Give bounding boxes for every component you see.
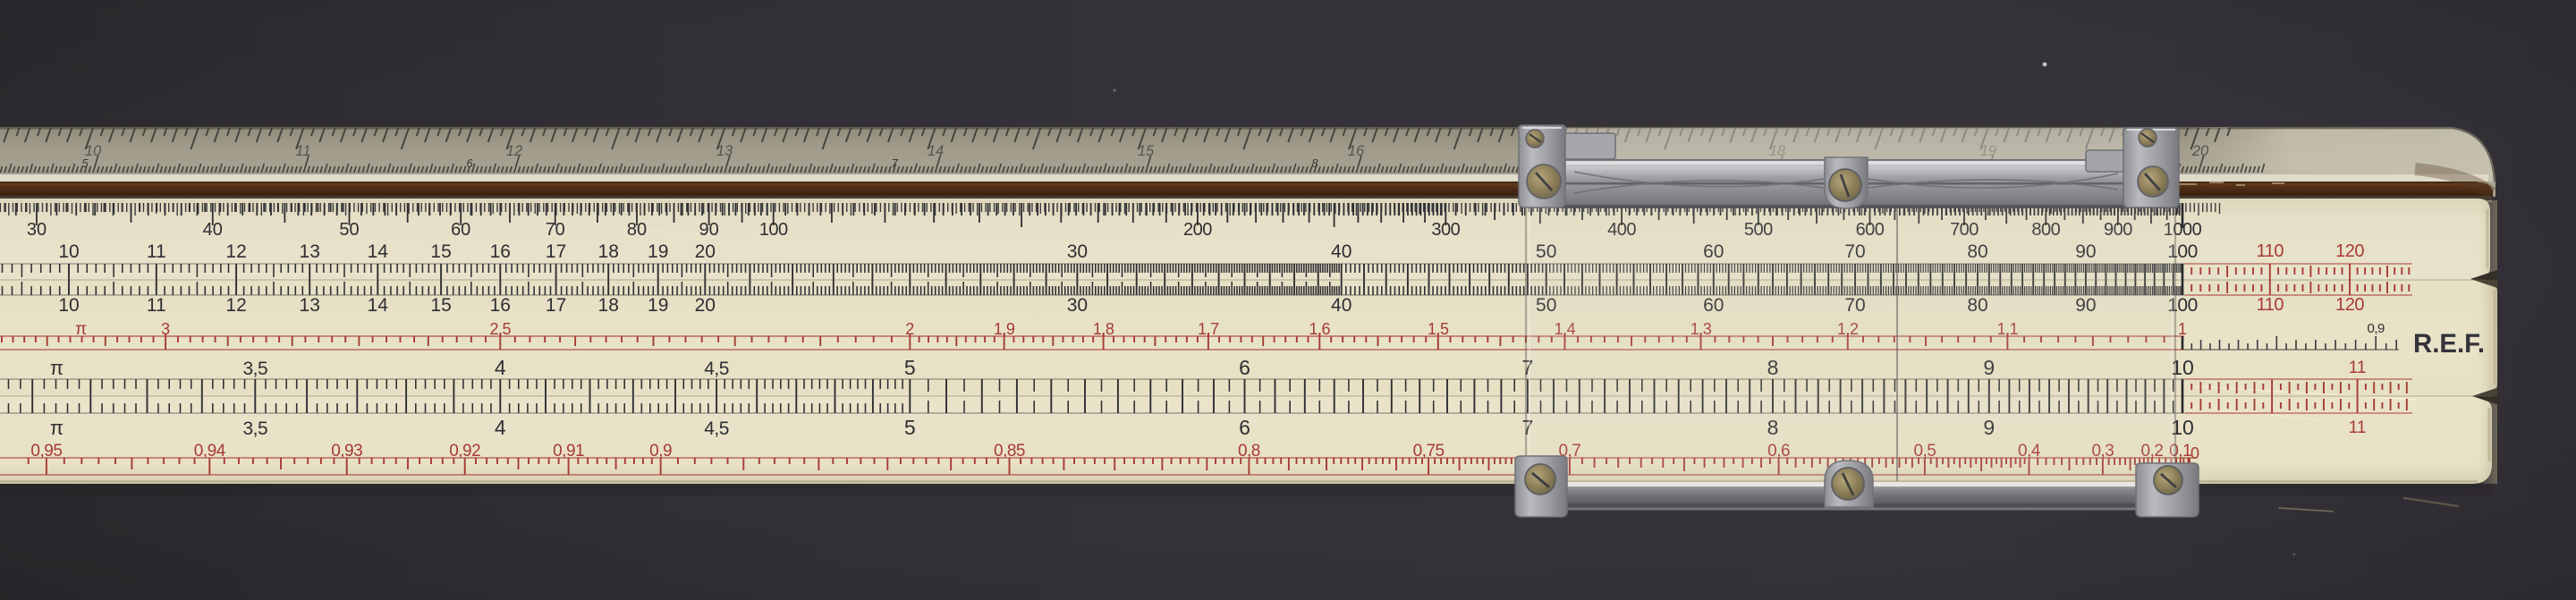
svg-text:12: 12 (225, 241, 246, 262)
svg-text:0: 0 (2190, 444, 2199, 462)
svg-text:13: 13 (300, 241, 320, 262)
svg-text:4: 4 (495, 356, 506, 379)
svg-text:13: 13 (716, 143, 733, 159)
svg-text:18: 18 (598, 295, 619, 316)
svg-text:40: 40 (203, 220, 223, 240)
svg-text:π: π (75, 320, 87, 339)
svg-text:0,9: 0,9 (649, 442, 672, 461)
svg-text:8: 8 (1311, 156, 1318, 170)
svg-text:19: 19 (648, 295, 668, 316)
svg-text:7: 7 (891, 156, 898, 170)
svg-text:12: 12 (225, 295, 246, 316)
svg-text:120: 120 (2335, 295, 2364, 315)
svg-text:70: 70 (546, 220, 565, 240)
svg-text:40: 40 (1331, 241, 1352, 262)
svg-text:11: 11 (2349, 359, 2367, 377)
svg-text:15: 15 (1138, 143, 1155, 159)
svg-text:80: 80 (627, 220, 647, 240)
svg-text:3,5: 3,5 (242, 359, 267, 379)
svg-text:3,5: 3,5 (242, 418, 267, 439)
svg-text:4,5: 4,5 (704, 418, 729, 439)
svg-text:16: 16 (490, 295, 511, 316)
svg-text:17: 17 (546, 241, 566, 262)
svg-text:18: 18 (598, 241, 619, 262)
svg-text:5: 5 (904, 416, 916, 439)
svg-text:300: 300 (1431, 220, 1460, 240)
svg-text:14: 14 (928, 143, 944, 159)
svg-text:6: 6 (466, 156, 473, 170)
svg-text:1,6: 1,6 (1309, 320, 1331, 338)
svg-text:0,93: 0,93 (331, 442, 362, 461)
svg-text:11: 11 (295, 143, 310, 159)
svg-text:0,91: 0,91 (553, 442, 584, 461)
svg-text:10: 10 (58, 241, 79, 262)
svg-text:40: 40 (1331, 295, 1352, 316)
svg-text:6: 6 (1239, 416, 1250, 439)
svg-text:0,94: 0,94 (194, 442, 226, 461)
svg-text:11: 11 (2349, 418, 2367, 437)
svg-text:4: 4 (495, 416, 506, 439)
svg-text:14: 14 (368, 241, 389, 262)
svg-text:0,92: 0,92 (449, 442, 480, 461)
svg-text:3: 3 (161, 320, 170, 338)
svg-text:10: 10 (58, 295, 79, 316)
svg-text:20: 20 (695, 241, 716, 262)
svg-text:60: 60 (451, 220, 470, 240)
svg-text:11: 11 (147, 295, 166, 316)
svg-text:0,8: 0,8 (1238, 442, 1260, 461)
svg-text:200: 200 (1183, 220, 1212, 240)
svg-text:17: 17 (546, 295, 566, 316)
svg-text:1,5: 1,5 (1428, 320, 1449, 338)
svg-text:15: 15 (430, 295, 451, 316)
svg-text:2: 2 (905, 320, 914, 338)
svg-text:0,95: 0,95 (30, 442, 62, 461)
svg-text:1: 1 (2178, 320, 2187, 338)
svg-text:30: 30 (27, 220, 47, 240)
svg-text:16: 16 (490, 241, 511, 262)
svg-text:5: 5 (81, 156, 89, 170)
svg-text:4,5: 4,5 (704, 359, 729, 379)
svg-text:0,9: 0,9 (2368, 321, 2385, 336)
svg-text:110: 110 (2257, 241, 2284, 261)
svg-text:110: 110 (2257, 295, 2284, 315)
svg-text:30: 30 (1067, 295, 1088, 316)
svg-text:120: 120 (2335, 241, 2364, 261)
svg-text:5: 5 (904, 356, 916, 379)
svg-text:1,7: 1,7 (1198, 320, 1219, 338)
svg-text:100: 100 (759, 220, 788, 240)
svg-text:30: 30 (1067, 241, 1088, 262)
svg-text:π: π (50, 357, 64, 379)
svg-text:2,5: 2,5 (490, 320, 512, 338)
svg-text:16: 16 (1348, 143, 1365, 159)
svg-text:20: 20 (2191, 143, 2209, 159)
svg-text:π: π (50, 417, 64, 439)
svg-text:1,8: 1,8 (1093, 320, 1114, 338)
svg-text:R.E.F.: R.E.F. (2413, 329, 2485, 359)
svg-text:90: 90 (699, 220, 718, 240)
svg-text:13: 13 (300, 295, 320, 316)
svg-text:14: 14 (368, 295, 389, 316)
svg-text:50: 50 (339, 220, 359, 240)
svg-text:11: 11 (147, 241, 166, 262)
svg-text:20: 20 (695, 295, 716, 316)
svg-text:6: 6 (1239, 356, 1250, 379)
svg-text:19: 19 (648, 241, 668, 262)
svg-text:0,85: 0,85 (994, 442, 1025, 461)
svg-text:0,75: 0,75 (1413, 442, 1445, 461)
svg-text:1,9: 1,9 (994, 320, 1015, 338)
svg-text:15: 15 (430, 241, 451, 262)
svg-text:12: 12 (506, 143, 522, 159)
